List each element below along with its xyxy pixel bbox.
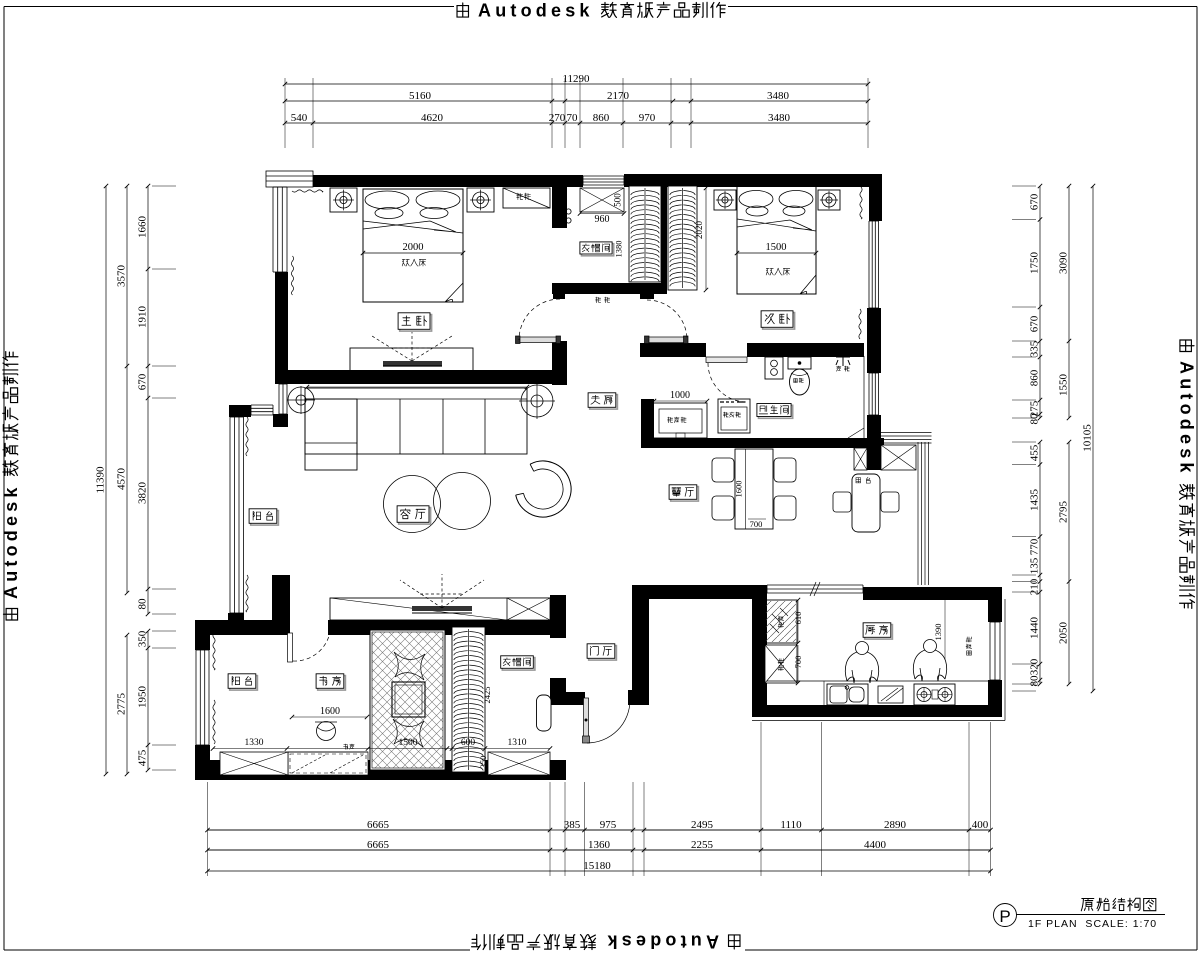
svg-text:Autodesk: Autodesk <box>603 931 719 951</box>
svg-text:670: 670 <box>137 373 149 390</box>
svg-text:1F PLAN SCALE: 1:70: 1F PLAN SCALE: 1:70 <box>1028 918 1157 930</box>
svg-text:1500: 1500 <box>399 738 418 748</box>
svg-text:Autodesk: Autodesk <box>478 1 594 21</box>
svg-text:350: 350 <box>137 630 149 647</box>
svg-text:1435: 1435 <box>1029 489 1041 512</box>
svg-text:5160: 5160 <box>409 90 432 102</box>
svg-text:11290: 11290 <box>562 73 590 85</box>
svg-text:15180: 15180 <box>583 860 611 872</box>
svg-text:2795: 2795 <box>1058 501 1070 524</box>
svg-text:2050: 2050 <box>1058 622 1070 645</box>
svg-text:860: 860 <box>1029 369 1041 386</box>
svg-text:2775: 2775 <box>116 693 128 716</box>
svg-text:6665: 6665 <box>367 839 390 851</box>
svg-text:320: 320 <box>1029 658 1041 675</box>
svg-text:1390: 1390 <box>933 624 943 641</box>
svg-text:1550: 1550 <box>1058 374 1070 397</box>
svg-text:975: 975 <box>600 819 617 831</box>
svg-text:1310: 1310 <box>508 738 527 748</box>
svg-text:2425: 2425 <box>482 687 492 704</box>
svg-text:3570: 3570 <box>116 265 128 288</box>
svg-text:4570: 4570 <box>116 468 128 491</box>
svg-text:1000: 1000 <box>670 390 690 401</box>
svg-text:1380: 1380 <box>614 241 624 258</box>
svg-text:670: 670 <box>1029 193 1041 210</box>
svg-text:2495: 2495 <box>691 819 714 831</box>
svg-text:1750: 1750 <box>1029 252 1041 275</box>
svg-text:80: 80 <box>137 598 149 610</box>
svg-text:1600: 1600 <box>734 481 744 498</box>
svg-text:2170: 2170 <box>607 90 630 102</box>
svg-text:P: P <box>999 907 1010 926</box>
svg-text:80: 80 <box>1029 413 1041 425</box>
svg-text:Autodesk: Autodesk <box>1 483 21 599</box>
svg-text:700: 700 <box>750 519 763 529</box>
svg-text:970: 970 <box>639 112 656 124</box>
svg-text:1950: 1950 <box>137 686 149 709</box>
svg-text:4620: 4620 <box>421 112 444 124</box>
svg-text:1360: 1360 <box>588 839 611 851</box>
svg-text:1910: 1910 <box>137 306 149 329</box>
svg-text:Autodesk: Autodesk <box>1176 361 1196 477</box>
svg-text:2020: 2020 <box>694 221 704 240</box>
svg-text:80: 80 <box>1029 675 1041 687</box>
svg-text:11390: 11390 <box>95 466 107 494</box>
svg-text:1330: 1330 <box>245 738 264 748</box>
svg-text:3480: 3480 <box>768 112 791 124</box>
svg-text:475: 475 <box>137 749 149 766</box>
svg-text:270: 270 <box>549 112 566 124</box>
svg-text:400: 400 <box>972 819 989 831</box>
svg-text:540: 540 <box>291 112 308 124</box>
svg-text:210: 210 <box>1029 578 1041 595</box>
svg-text:1600: 1600 <box>320 706 340 717</box>
svg-text:10105: 10105 <box>1082 424 1094 452</box>
svg-text:860: 860 <box>593 112 610 124</box>
svg-text:1660: 1660 <box>137 216 149 239</box>
svg-text:70: 70 <box>567 112 579 124</box>
svg-text:135: 135 <box>1029 557 1041 574</box>
svg-text:500: 500 <box>613 193 623 207</box>
svg-text:350: 350 <box>478 756 488 769</box>
svg-text:385: 385 <box>564 819 581 831</box>
svg-text:1500: 1500 <box>766 242 787 253</box>
svg-text:455: 455 <box>1029 444 1041 461</box>
svg-text:3480: 3480 <box>767 90 790 102</box>
svg-text:2255: 2255 <box>691 839 714 851</box>
svg-text:4400: 4400 <box>864 839 887 851</box>
svg-text:3820: 3820 <box>137 482 149 505</box>
svg-text:600: 600 <box>461 738 476 748</box>
svg-text:3090: 3090 <box>1058 252 1070 275</box>
svg-text:335: 335 <box>1029 340 1041 357</box>
svg-text:770: 770 <box>1029 538 1041 555</box>
svg-text:2000: 2000 <box>403 242 424 253</box>
svg-text:670: 670 <box>1029 315 1041 332</box>
svg-text:6665: 6665 <box>367 819 390 831</box>
svg-text:4000: 4000 <box>407 376 428 387</box>
svg-text:2890: 2890 <box>884 819 907 831</box>
svg-text:960: 960 <box>595 214 610 225</box>
svg-text:1440: 1440 <box>1029 617 1041 640</box>
svg-text:1110: 1110 <box>780 819 802 831</box>
